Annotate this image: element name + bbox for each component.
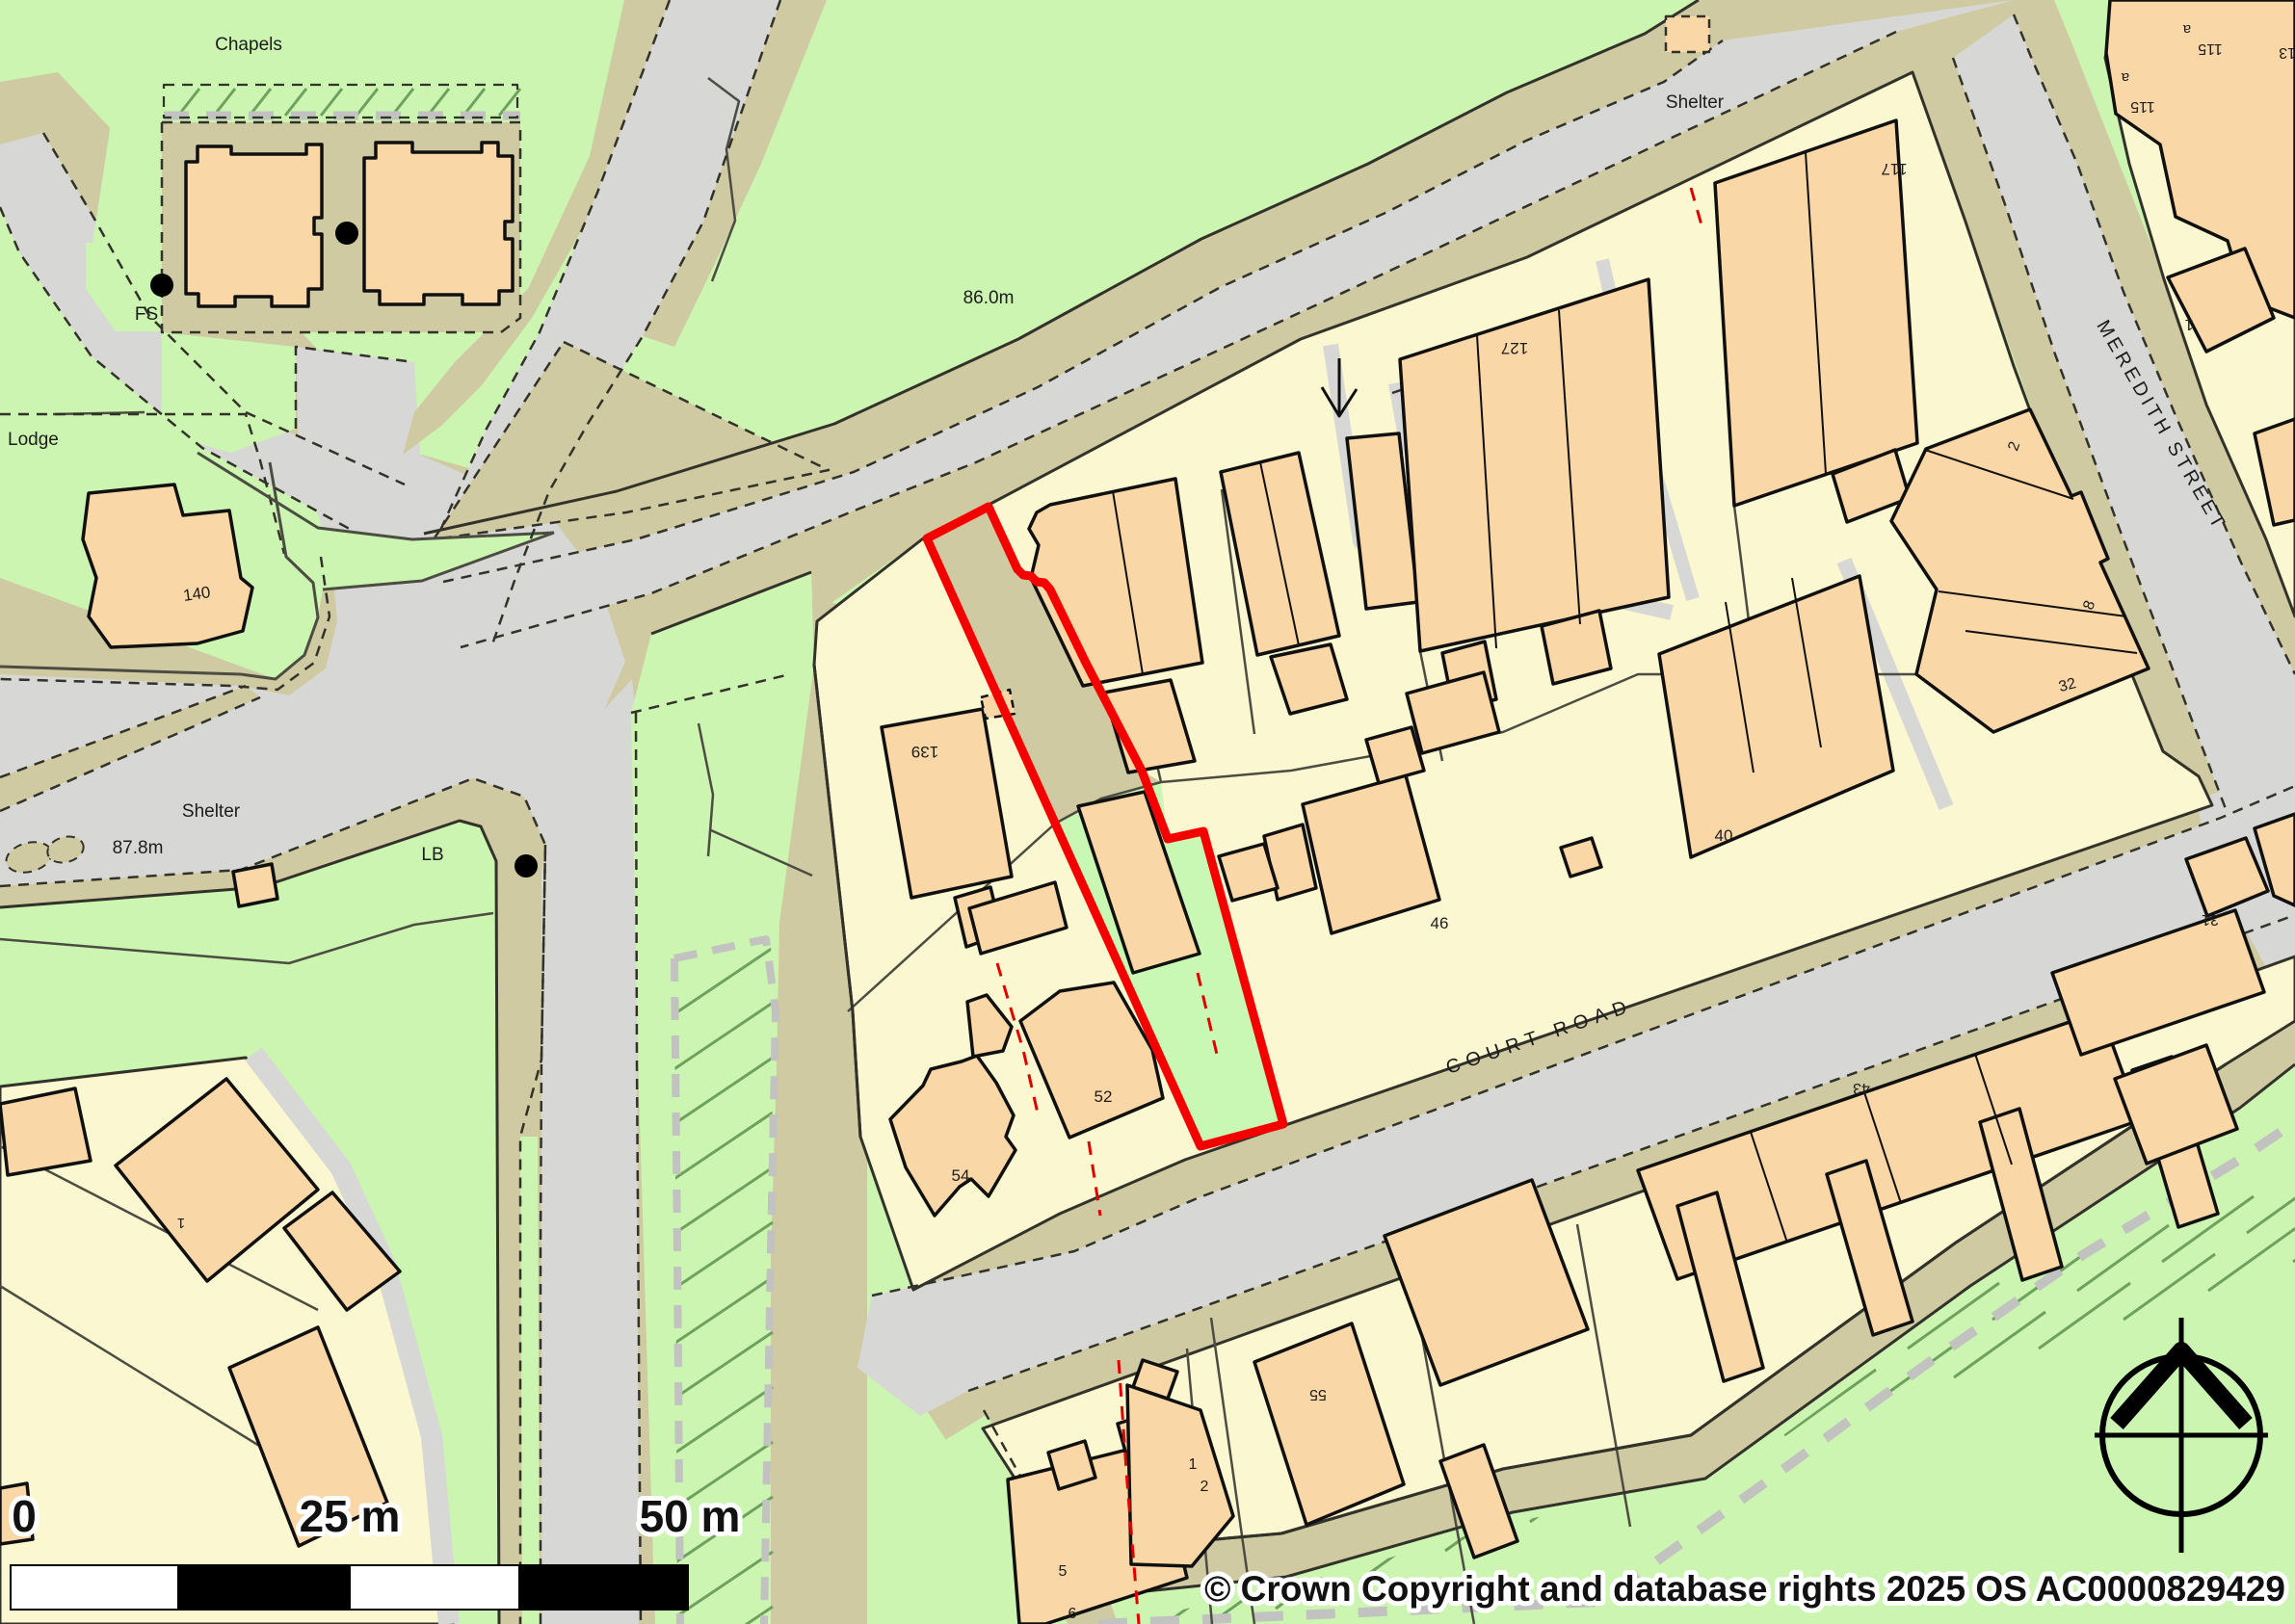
svg-text:2: 2 [1200, 1479, 1209, 1495]
svg-text:46: 46 [1431, 914, 1449, 932]
svg-text:a: a [2182, 21, 2191, 38]
svg-text:LB: LB [421, 845, 443, 865]
svg-text:31: 31 [2202, 911, 2219, 928]
svg-text:Lodge: Lodge [8, 430, 59, 450]
svg-text:43: 43 [1853, 1080, 1870, 1096]
svg-text:Shelter: Shelter [182, 801, 241, 822]
svg-text:a: a [2121, 69, 2129, 86]
svg-text:0: 0 [12, 1491, 37, 1541]
svg-text:52: 52 [1095, 1087, 1113, 1106]
svg-text:Shelter: Shelter [1666, 92, 1725, 113]
svg-text:115: 115 [2198, 40, 2223, 57]
svg-text:139: 139 [911, 743, 938, 761]
svg-text:115: 115 [2130, 98, 2155, 115]
svg-text:5: 5 [1059, 1563, 1068, 1580]
svg-text:40: 40 [1715, 826, 1733, 845]
svg-text:6: 6 [1068, 1606, 1077, 1622]
svg-text:140: 140 [182, 583, 212, 605]
svg-text:87.8m: 87.8m [113, 838, 164, 858]
svg-text:25 m: 25 m [300, 1491, 401, 1541]
svg-text:50 m: 50 m [640, 1491, 741, 1541]
svg-text:127: 127 [1501, 339, 1528, 357]
svg-text:113: 113 [2279, 44, 2295, 61]
svg-text:86.0m: 86.0m [963, 288, 1015, 308]
svg-text:1: 1 [177, 1215, 185, 1231]
svg-text:55: 55 [1309, 1386, 1327, 1402]
svg-text:54: 54 [952, 1166, 970, 1185]
svg-text:Chapels: Chapels [215, 35, 282, 55]
svg-text:1: 1 [1189, 1456, 1198, 1473]
svg-text:© Crown Copyright and database: © Crown Copyright and database rights 20… [1204, 1569, 2285, 1609]
svg-text:1: 1 [2184, 316, 2193, 332]
svg-text:FS: FS [135, 304, 158, 325]
svg-text:117: 117 [1881, 160, 1907, 178]
